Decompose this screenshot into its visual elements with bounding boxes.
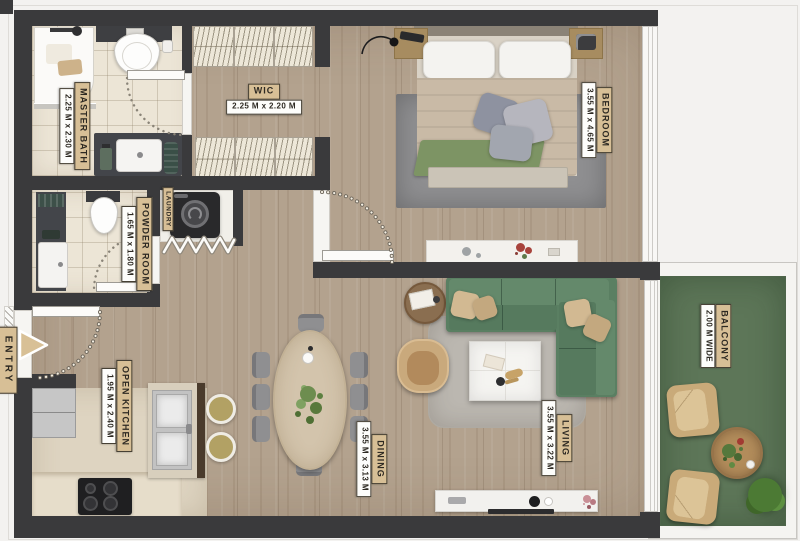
room-label-bedroom: BEDROOM 3.55 M x 4.65 M — [582, 82, 613, 158]
wall — [14, 516, 658, 538]
room-dimensions: 1.65 M x 1.80 M — [122, 206, 137, 282]
wall — [32, 374, 76, 388]
washer-controls — [174, 194, 188, 198]
wall — [315, 26, 330, 67]
island-edge — [197, 383, 205, 478]
sideboard-decor-circles — [462, 247, 471, 256]
room-dimensions: 1.95 M x 2.40 M — [102, 368, 117, 444]
room-label-entry: ENTRY — [0, 327, 18, 394]
wall — [315, 137, 330, 192]
vanity-towel — [164, 142, 178, 174]
console-speaker — [529, 496, 540, 507]
bedroom-window — [642, 26, 658, 262]
floor-plan: MASTER BATH 2.25 M x 2.30 M WIC 2.25 M x… — [0, 0, 800, 541]
sink-basin-bottom — [156, 432, 188, 466]
bed-pillow-left — [423, 41, 495, 79]
tv — [488, 509, 554, 514]
page-corner-mark — [0, 0, 13, 14]
room-name: OPEN KITCHEN — [116, 360, 132, 452]
dining-chair — [350, 384, 368, 410]
balcony-chair-2-cushion — [672, 476, 710, 521]
powder-sink — [38, 242, 68, 288]
console-remote — [448, 497, 466, 504]
wall — [14, 10, 658, 26]
room-dimensions: 3.55 M x 3.13 M — [357, 421, 372, 497]
wall — [14, 293, 160, 307]
wardrobe-divider — [234, 138, 236, 180]
balcony-table — [711, 427, 763, 479]
accent-pillow-3 — [488, 124, 533, 162]
fridge — [32, 388, 76, 438]
bed-pillow-right — [499, 41, 571, 79]
wardrobe-top — [193, 26, 313, 67]
vanity-faucet — [137, 152, 143, 158]
room-name: LAUNDRY — [162, 187, 173, 231]
room-name: DINING — [371, 434, 387, 484]
wardrobe-bottom — [195, 137, 313, 181]
powder-faucet — [58, 262, 63, 267]
room-label-laundry: LAUNDRY — [162, 187, 173, 231]
console-flowers — [583, 495, 591, 503]
room-dimensions: 2.25 M x 2.30 M — [60, 88, 75, 164]
room-label-master-bath: MASTER BATH 2.25 M x 2.30 M — [60, 82, 91, 170]
dining-chair — [252, 352, 270, 378]
room-name: ENTRY — [0, 327, 18, 394]
console-dish — [544, 497, 553, 506]
dining-chair — [350, 352, 368, 378]
bed-bench — [428, 167, 568, 188]
vanity-soap — [100, 148, 112, 170]
entry-door — [32, 306, 100, 317]
room-label-wic: WIC 2.25 M x 2.20 M — [226, 84, 302, 115]
wall — [14, 378, 32, 538]
fridge-door-line — [33, 412, 75, 413]
wall — [182, 26, 192, 73]
balcony-glass-door — [644, 280, 658, 512]
master-bath-door — [127, 70, 185, 80]
wall — [32, 176, 330, 190]
room-name: POWDER ROOM — [136, 197, 152, 291]
wall — [313, 262, 658, 278]
wardrobe-divider — [274, 138, 276, 180]
toilet-seat-line — [122, 42, 152, 70]
dining-chair — [252, 416, 270, 442]
wardrobe-divider — [233, 27, 235, 66]
balcony-table-cup — [746, 460, 755, 469]
armchair-seat — [407, 351, 439, 385]
master-bath-doorway — [182, 73, 192, 135]
wall — [14, 10, 32, 310]
powder-towels — [38, 194, 64, 207]
shower-stool — [57, 59, 82, 76]
room-dimensions: 3.55 M x 3.22 M — [542, 400, 557, 476]
sink-basin-top — [156, 394, 188, 428]
nightstand-tray — [576, 34, 596, 50]
side-table-cup — [433, 296, 440, 303]
toilet-paper-roll — [162, 40, 173, 53]
sideboard-flowers — [516, 243, 525, 252]
room-dimensions: 2.00 M WIDE — [701, 304, 716, 368]
room-name: WIC — [248, 84, 281, 100]
bar-stool-2 — [206, 432, 236, 462]
balcony-chair-1-cushion — [672, 388, 709, 432]
room-name: BEDROOM — [596, 87, 612, 153]
washer-drum-inner — [188, 207, 202, 221]
room-label-dining: DINING 3.55 M x 3.13 M — [357, 421, 388, 497]
sink-faucet — [186, 424, 192, 434]
coffee-table — [469, 341, 541, 401]
wardrobe-divider — [273, 27, 275, 66]
wall — [640, 512, 660, 538]
wall — [233, 188, 243, 246]
balcony-bush — [748, 478, 782, 512]
wall — [640, 262, 660, 280]
table-pepper-mill — [308, 346, 313, 351]
wall — [182, 135, 192, 190]
cooktop-burner — [85, 483, 96, 494]
sideboard-box — [548, 248, 560, 256]
bar-stool-1 — [206, 394, 236, 424]
shower-head — [72, 26, 82, 36]
bedroom-door — [322, 250, 394, 261]
table-cup — [302, 352, 314, 364]
powder-soap — [42, 230, 60, 239]
room-dimensions: 3.55 M x 4.65 M — [582, 82, 597, 158]
table-plant — [300, 386, 316, 402]
coffee-table-bowl — [496, 377, 505, 386]
room-label-powder-room: POWDER ROOM 1.65 M x 1.80 M — [122, 197, 153, 291]
room-dimensions: 2.25 M x 2.20 M — [226, 100, 302, 115]
balcony-table-berries — [737, 438, 744, 445]
room-label-balcony: BALCONY 2.00 M WIDE — [701, 304, 732, 368]
room-name: LIVING — [556, 414, 572, 462]
room-name: MASTER BATH — [74, 82, 90, 170]
room-label-living: LIVING 3.55 M x 3.22 M — [542, 400, 573, 476]
room-label-open-kitchen: OPEN KITCHEN 1.95 M x 2.40 M — [102, 360, 133, 452]
room-name: BALCONY — [715, 304, 731, 368]
dining-chair — [252, 384, 270, 410]
balcony-table-plant — [722, 444, 736, 458]
